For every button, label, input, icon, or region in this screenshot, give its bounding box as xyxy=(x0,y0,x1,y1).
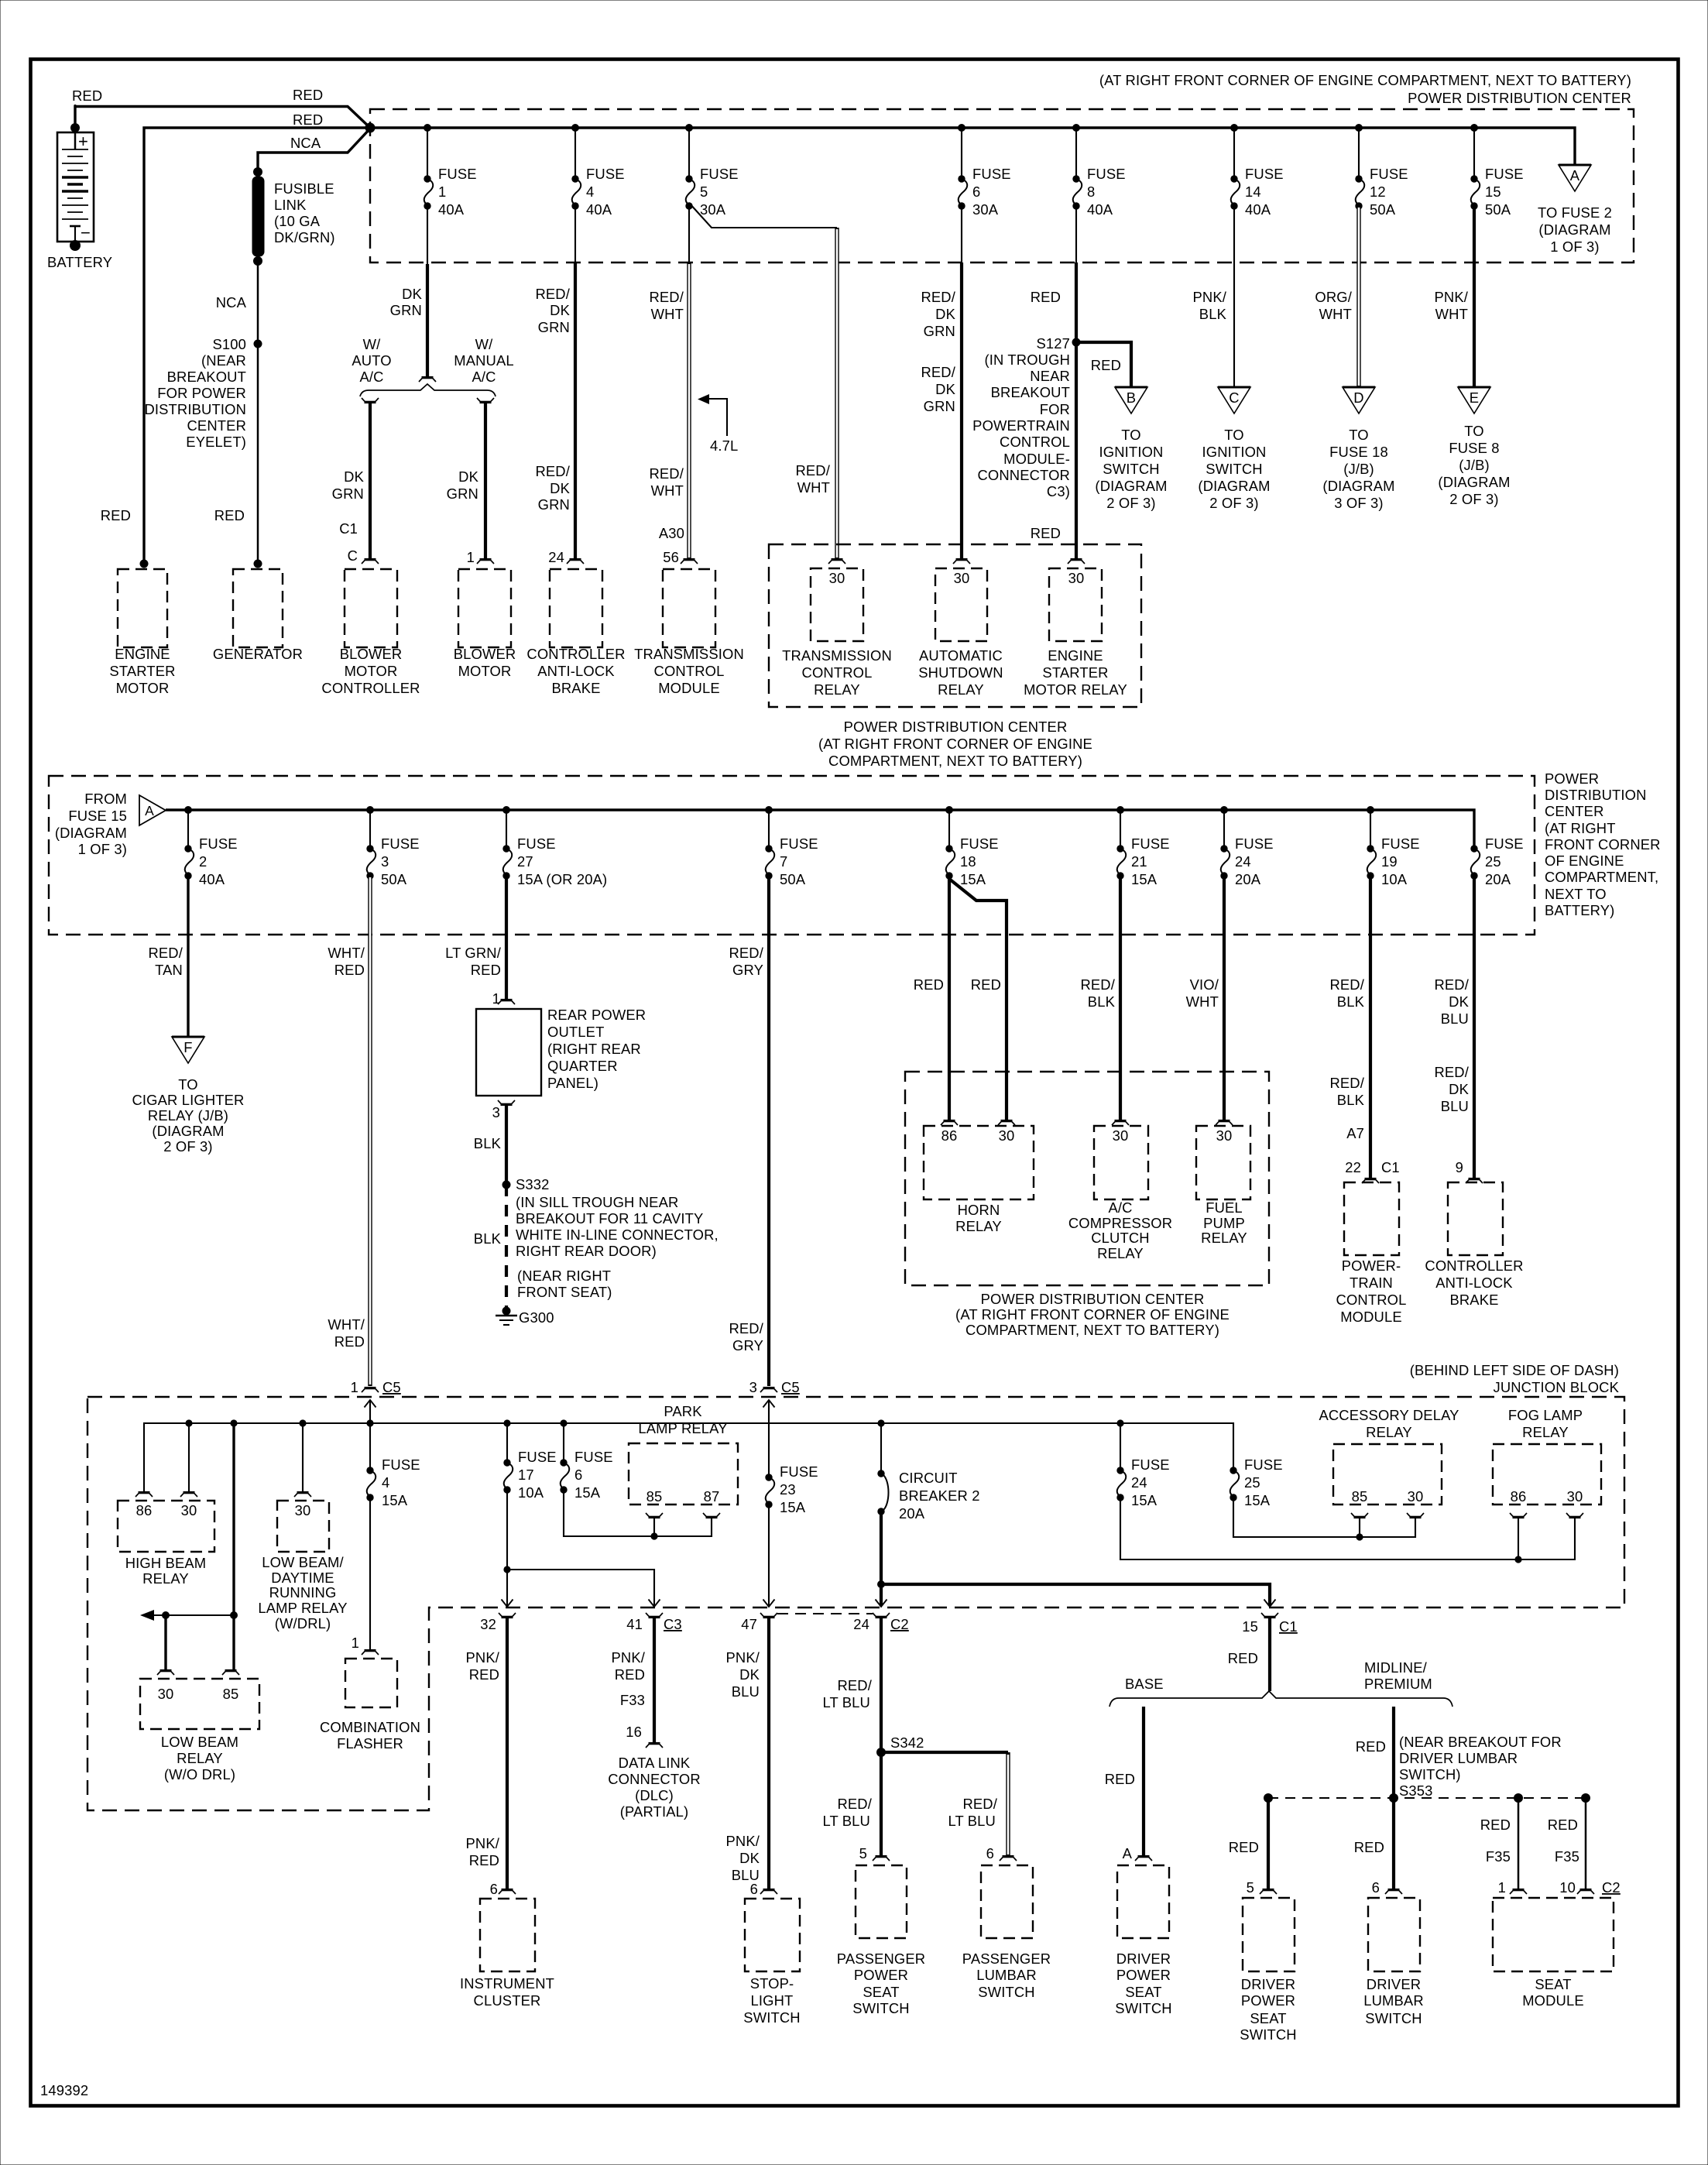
svg-text:LT BLU: LT BLU xyxy=(948,1813,996,1829)
svg-text:A/C: A/C xyxy=(472,369,496,385)
svg-text:30: 30 xyxy=(1113,1127,1129,1144)
svg-text:15: 15 xyxy=(1242,1618,1258,1635)
svg-text:LT GRN/: LT GRN/ xyxy=(445,945,502,961)
svg-text:ENGINE: ENGINE xyxy=(1048,647,1103,664)
svg-text:S127: S127 xyxy=(1036,335,1070,352)
svg-text:SWITCH): SWITCH) xyxy=(1399,1766,1461,1782)
svg-text:(DIAGRAM: (DIAGRAM xyxy=(1198,478,1270,494)
svg-text:BLU: BLU xyxy=(732,1683,760,1700)
svg-text:DK: DK xyxy=(1449,993,1469,1010)
svg-text:WHT: WHT xyxy=(651,482,684,499)
svg-text:CIRCUIT: CIRCUIT xyxy=(899,1470,958,1486)
svg-text:BREAKOUT: BREAKOUT xyxy=(991,384,1070,400)
svg-text:MODULE: MODULE xyxy=(658,680,720,696)
svg-text:DK: DK xyxy=(935,306,955,322)
svg-text:RED/: RED/ xyxy=(837,1796,872,1812)
svg-text:FUSE: FUSE xyxy=(1370,166,1408,182)
svg-text:3: 3 xyxy=(492,1104,500,1120)
svg-text:SWITCH: SWITCH xyxy=(1365,2010,1422,2026)
svg-text:OF ENGINE: OF ENGINE xyxy=(1545,853,1624,869)
svg-text:FUSE: FUSE xyxy=(382,1456,420,1473)
svg-text:SWITCH: SWITCH xyxy=(1240,2026,1296,2043)
svg-text:DK: DK xyxy=(550,480,570,496)
svg-text:DRIVER: DRIVER xyxy=(1241,1976,1295,1992)
svg-text:BLU: BLU xyxy=(1441,1098,1469,1114)
svg-text:30: 30 xyxy=(1567,1488,1583,1505)
svg-text:F35: F35 xyxy=(1555,1848,1579,1865)
svg-text:RED: RED xyxy=(214,507,245,523)
svg-text:30: 30 xyxy=(181,1502,197,1518)
svg-text:GRN: GRN xyxy=(332,485,364,502)
svg-text:CIGAR LIGHTER: CIGAR LIGHTER xyxy=(132,1092,244,1108)
svg-text:RED: RED xyxy=(1356,1738,1386,1755)
svg-text:C2: C2 xyxy=(890,1616,909,1632)
svg-text:F: F xyxy=(183,1039,192,1055)
svg-text:(AT RIGHT FRONT CORNER OF ENGI: (AT RIGHT FRONT CORNER OF ENGINE xyxy=(818,736,1092,752)
svg-text:FROM: FROM xyxy=(84,791,127,807)
svg-text:G300: G300 xyxy=(519,1309,554,1326)
svg-text:25: 25 xyxy=(1244,1474,1260,1491)
svg-text:6: 6 xyxy=(986,1845,994,1861)
svg-text:PANEL): PANEL) xyxy=(547,1075,598,1091)
svg-text:−: − xyxy=(81,223,91,242)
svg-text:FOG LAMP: FOG LAMP xyxy=(1508,1407,1583,1423)
svg-text:D: D xyxy=(1353,389,1363,406)
svg-text:POWER: POWER xyxy=(1545,770,1599,787)
svg-text:SEAT: SEAT xyxy=(1250,2010,1286,2026)
svg-text:TAN: TAN xyxy=(155,962,183,978)
svg-text:BASE: BASE xyxy=(1125,1676,1164,1692)
svg-text:23: 23 xyxy=(780,1481,796,1498)
svg-text:FUSE: FUSE xyxy=(1485,835,1524,852)
svg-text:GRN: GRN xyxy=(447,485,478,502)
svg-text:CONNECTOR: CONNECTOR xyxy=(977,467,1070,483)
svg-text:RED/: RED/ xyxy=(1080,976,1115,993)
svg-text:OUTLET: OUTLET xyxy=(547,1024,604,1040)
svg-text:RED/: RED/ xyxy=(1434,1064,1469,1080)
svg-text:FUSE: FUSE xyxy=(517,835,556,852)
svg-text:RED: RED xyxy=(293,87,323,103)
svg-text:COMPARTMENT, NEXT TO BATTERY): COMPARTMENT, NEXT TO BATTERY) xyxy=(828,753,1082,769)
svg-text:RELAY: RELAY xyxy=(1366,1424,1412,1440)
svg-text:20A: 20A xyxy=(1485,871,1511,887)
svg-text:RED/: RED/ xyxy=(535,286,570,302)
svg-text:GRY: GRY xyxy=(732,962,763,978)
svg-text:RELAY: RELAY xyxy=(955,1218,1002,1234)
svg-text:DATA LINK: DATA LINK xyxy=(619,1755,691,1771)
svg-text:W/: W/ xyxy=(475,336,494,352)
svg-text:FUSE: FUSE xyxy=(780,835,818,852)
svg-text:24: 24 xyxy=(548,549,564,565)
svg-text:FUSE: FUSE xyxy=(780,1463,818,1480)
svg-text:2 OF 3): 2 OF 3) xyxy=(163,1138,212,1155)
svg-text:CONTROLLER: CONTROLLER xyxy=(321,680,420,696)
svg-text:5: 5 xyxy=(859,1845,867,1861)
svg-text:(DLC): (DLC) xyxy=(635,1787,674,1803)
svg-text:A: A xyxy=(145,803,154,818)
svg-text:FLASHER: FLASHER xyxy=(337,1735,403,1752)
svg-text:ANTI-LOCK: ANTI-LOCK xyxy=(1435,1275,1513,1291)
svg-text:30A: 30A xyxy=(972,201,999,218)
svg-text:PNK/: PNK/ xyxy=(725,1649,760,1666)
svg-text:RED: RED xyxy=(1031,525,1061,541)
svg-text:30: 30 xyxy=(1216,1127,1233,1144)
svg-text:SWITCH: SWITCH xyxy=(1206,461,1262,477)
svg-text:(DIAGRAM: (DIAGRAM xyxy=(1438,474,1510,490)
svg-text:C1: C1 xyxy=(339,520,358,537)
svg-text:CENTER: CENTER xyxy=(1545,803,1604,819)
svg-text:POWER DISTRIBUTION CENTER: POWER DISTRIBUTION CENTER xyxy=(981,1291,1205,1307)
svg-text:DK: DK xyxy=(1449,1081,1469,1097)
svg-text:BLK: BLK xyxy=(1199,306,1227,322)
svg-text:POWER: POWER xyxy=(1241,1992,1295,2009)
svg-text:30A: 30A xyxy=(700,201,726,218)
svg-text:DRIVER: DRIVER xyxy=(1367,1976,1421,1992)
svg-text:40A: 40A xyxy=(438,201,465,218)
svg-text:RELAY: RELAY xyxy=(814,681,860,698)
svg-text:6: 6 xyxy=(490,1881,498,1897)
svg-text:CONTROLLER: CONTROLLER xyxy=(526,646,625,662)
svg-text:RED: RED xyxy=(1229,1839,1259,1855)
svg-text:FUSE: FUSE xyxy=(1087,166,1126,182)
svg-text:C5: C5 xyxy=(781,1379,800,1395)
svg-text:FUSE: FUSE xyxy=(960,835,999,852)
svg-text:MOTOR: MOTOR xyxy=(345,663,398,679)
svg-text:2 OF 3): 2 OF 3) xyxy=(1106,495,1155,511)
svg-text:(NEAR RIGHT: (NEAR RIGHT xyxy=(517,1268,611,1284)
svg-text:RED/: RED/ xyxy=(962,1796,997,1812)
svg-text:BRAKE: BRAKE xyxy=(1449,1292,1498,1308)
svg-text:(AT RIGHT FRONT CORNER OF ENGI: (AT RIGHT FRONT CORNER OF ENGINE COMPART… xyxy=(1099,72,1631,88)
svg-text:RED/: RED/ xyxy=(921,289,955,305)
svg-text:FUSE: FUSE xyxy=(1131,1456,1170,1473)
svg-text:SHUTDOWN: SHUTDOWN xyxy=(918,664,1003,681)
svg-text:32: 32 xyxy=(480,1616,496,1632)
svg-text:CLUSTER: CLUSTER xyxy=(474,1992,541,2009)
svg-text:RED: RED xyxy=(72,87,102,104)
svg-text:GRN: GRN xyxy=(390,302,422,318)
svg-text:NEAR: NEAR xyxy=(1030,368,1070,384)
svg-text:WHT/: WHT/ xyxy=(328,945,365,961)
svg-text:WHITE IN-LINE CONNECTOR,: WHITE IN-LINE CONNECTOR, xyxy=(516,1227,719,1243)
svg-text:18: 18 xyxy=(960,853,976,870)
svg-text:FUSIBLE: FUSIBLE xyxy=(274,180,334,197)
svg-text:FRONT SEAT): FRONT SEAT) xyxy=(517,1284,612,1300)
svg-text:LIGHT: LIGHT xyxy=(751,1992,794,2009)
svg-text:FUSE: FUSE xyxy=(1485,166,1524,182)
svg-text:(W/O DRL): (W/O DRL) xyxy=(164,1766,235,1782)
svg-text:RELAY: RELAY xyxy=(938,681,984,698)
svg-text:BLK: BLK xyxy=(1337,993,1365,1010)
svg-text:MOTOR: MOTOR xyxy=(116,680,170,696)
svg-text:8: 8 xyxy=(1087,184,1095,200)
svg-text:56: 56 xyxy=(663,549,679,565)
svg-text:BRAKE: BRAKE xyxy=(551,680,600,696)
svg-text:1: 1 xyxy=(352,1635,359,1651)
svg-text:+: + xyxy=(78,132,88,151)
svg-text:DK: DK xyxy=(935,381,955,397)
svg-text:GRN: GRN xyxy=(538,496,570,513)
svg-text:A/C: A/C xyxy=(359,369,383,385)
svg-text:2 OF 3): 2 OF 3) xyxy=(1449,491,1498,507)
svg-text:(W/DRL): (W/DRL) xyxy=(275,1615,331,1631)
svg-text:SWITCH: SWITCH xyxy=(1103,461,1159,477)
svg-text:COMBINATION: COMBINATION xyxy=(320,1719,420,1735)
svg-text:RELAY: RELAY xyxy=(1097,1245,1144,1261)
svg-text:RED: RED xyxy=(914,976,944,993)
svg-text:RED/: RED/ xyxy=(649,289,684,305)
svg-text:40A: 40A xyxy=(199,871,225,887)
svg-text:1 OF 3): 1 OF 3) xyxy=(78,841,127,857)
svg-text:RED: RED xyxy=(1091,357,1121,373)
svg-text:WHT: WHT xyxy=(1319,306,1352,322)
svg-text:LT BLU: LT BLU xyxy=(822,1694,870,1710)
svg-text:LUMBAR: LUMBAR xyxy=(1363,1992,1424,2009)
svg-text:TO: TO xyxy=(1464,423,1484,439)
svg-text:RED: RED xyxy=(293,112,323,128)
svg-text:FUSE 15: FUSE 15 xyxy=(68,808,127,824)
svg-text:RED/: RED/ xyxy=(1434,976,1469,993)
svg-text:LOW BEAM: LOW BEAM xyxy=(161,1734,238,1750)
svg-text:RED/: RED/ xyxy=(837,1677,872,1693)
svg-text:21: 21 xyxy=(1131,853,1147,870)
svg-text:FUSE: FUSE xyxy=(1244,1456,1283,1473)
svg-text:LAMP RELAY: LAMP RELAY xyxy=(638,1420,727,1436)
svg-text:RED: RED xyxy=(1105,1771,1135,1787)
svg-text:149392: 149392 xyxy=(40,2082,88,2098)
svg-text:LT BLU: LT BLU xyxy=(822,1813,870,1829)
svg-text:GRN: GRN xyxy=(538,319,570,335)
svg-text:1: 1 xyxy=(467,549,475,565)
svg-text:30: 30 xyxy=(999,1127,1015,1144)
svg-text:RED/: RED/ xyxy=(649,465,684,482)
svg-text:PNK/: PNK/ xyxy=(611,1649,645,1666)
svg-text:41: 41 xyxy=(626,1616,643,1632)
svg-text:FUEL: FUEL xyxy=(1206,1199,1243,1216)
svg-text:C5: C5 xyxy=(382,1379,401,1395)
svg-text:85: 85 xyxy=(1352,1488,1368,1505)
svg-text:CONTROL: CONTROL xyxy=(1000,434,1070,450)
svg-text:20A: 20A xyxy=(1235,871,1261,887)
svg-text:(IN SILL TROUGH NEAR: (IN SILL TROUGH NEAR xyxy=(516,1194,678,1210)
svg-text:BREAKOUT: BREAKOUT xyxy=(167,369,246,385)
svg-text:POWERTRAIN: POWERTRAIN xyxy=(972,417,1070,434)
svg-text:BLK: BLK xyxy=(474,1230,502,1247)
svg-text:INSTRUMENT: INSTRUMENT xyxy=(460,1975,554,1992)
svg-text:(RIGHT REAR: (RIGHT REAR xyxy=(547,1041,641,1057)
svg-text:RED: RED xyxy=(469,1852,499,1868)
svg-text:COMPARTMENT,: COMPARTMENT, xyxy=(1545,869,1658,885)
svg-text:RELAY: RELAY xyxy=(1201,1230,1247,1246)
svg-text:40A: 40A xyxy=(1245,201,1271,218)
svg-text:BREAKOUT FOR 11 CAVITY: BREAKOUT FOR 11 CAVITY xyxy=(516,1210,703,1227)
svg-text:FUSE 8: FUSE 8 xyxy=(1449,440,1499,456)
svg-text:S342: S342 xyxy=(890,1734,924,1751)
svg-text:ORG/: ORG/ xyxy=(1315,289,1352,305)
svg-text:HORN: HORN xyxy=(958,1202,1000,1218)
svg-text:15: 15 xyxy=(1485,184,1501,200)
svg-text:GRN: GRN xyxy=(924,323,955,339)
svg-text:C: C xyxy=(348,547,358,564)
svg-text:NEXT TO: NEXT TO xyxy=(1545,886,1607,902)
svg-text:C1: C1 xyxy=(1381,1159,1400,1175)
svg-text:JUNCTION BLOCK: JUNCTION BLOCK xyxy=(1493,1379,1619,1395)
svg-text:BLK: BLK xyxy=(1088,993,1116,1010)
svg-text:CONTROLLER: CONTROLLER xyxy=(1425,1257,1523,1274)
svg-text:30: 30 xyxy=(158,1686,174,1702)
svg-text:S353: S353 xyxy=(1399,1782,1433,1799)
svg-text:FOR POWER: FOR POWER xyxy=(157,385,246,401)
svg-text:86: 86 xyxy=(136,1502,153,1518)
svg-text:RED/: RED/ xyxy=(535,463,570,479)
svg-text:RELAY (J/B): RELAY (J/B) xyxy=(148,1107,228,1124)
svg-text:SWITCH: SWITCH xyxy=(852,2000,909,2016)
svg-text:SEAT: SEAT xyxy=(863,1984,899,2000)
svg-text:POWER: POWER xyxy=(854,1967,908,1983)
svg-text:2 OF 3): 2 OF 3) xyxy=(1209,495,1258,511)
svg-text:BLOWER: BLOWER xyxy=(340,646,403,662)
svg-text:LINK: LINK xyxy=(274,197,307,213)
svg-text:FUSE: FUSE xyxy=(1381,835,1420,852)
svg-text:RELAY: RELAY xyxy=(1522,1424,1569,1440)
svg-text:B: B xyxy=(1127,389,1136,406)
svg-text:STARTER: STARTER xyxy=(109,663,175,679)
svg-text:50A: 50A xyxy=(1370,201,1396,218)
svg-text:1: 1 xyxy=(438,184,446,200)
svg-text:FUSE: FUSE xyxy=(381,835,420,852)
svg-text:MOTOR: MOTOR xyxy=(458,663,512,679)
svg-text:IGNITION: IGNITION xyxy=(1099,444,1164,460)
svg-text:RED: RED xyxy=(1480,1817,1511,1833)
svg-text:15A: 15A xyxy=(1244,1492,1271,1508)
svg-text:1: 1 xyxy=(492,990,500,1007)
svg-text:24: 24 xyxy=(853,1616,869,1632)
svg-text:PASSENGER: PASSENGER xyxy=(962,1951,1051,1967)
svg-text:PNK/: PNK/ xyxy=(465,1835,499,1851)
svg-text:5: 5 xyxy=(1247,1879,1254,1896)
svg-text:FUSE: FUSE xyxy=(574,1449,613,1465)
svg-text:6: 6 xyxy=(1372,1879,1380,1896)
svg-text:HIGH BEAM: HIGH BEAM xyxy=(125,1555,207,1571)
svg-text:40A: 40A xyxy=(1087,201,1113,218)
svg-text:S332: S332 xyxy=(516,1176,550,1192)
svg-text:30: 30 xyxy=(829,570,845,586)
svg-text:(BEHIND LEFT SIDE OF DASH): (BEHIND LEFT SIDE OF DASH) xyxy=(1410,1362,1619,1378)
svg-text:3: 3 xyxy=(749,1379,757,1395)
svg-text:30: 30 xyxy=(954,570,970,586)
svg-text:C2: C2 xyxy=(1602,1879,1621,1896)
svg-text:(AT RIGHT: (AT RIGHT xyxy=(1545,820,1616,836)
svg-text:BLU: BLU xyxy=(1441,1010,1469,1027)
svg-text:FUSE: FUSE xyxy=(1235,835,1274,852)
svg-text:(J/B): (J/B) xyxy=(1459,457,1490,473)
svg-text:F35: F35 xyxy=(1486,1848,1511,1865)
svg-text:85: 85 xyxy=(647,1488,663,1505)
svg-text:RED/: RED/ xyxy=(795,462,830,479)
svg-text:(NEAR BREAKOUT FOR: (NEAR BREAKOUT FOR xyxy=(1399,1734,1562,1750)
svg-text:CONTROL: CONTROL xyxy=(802,664,873,681)
svg-text:ENGINE: ENGINE xyxy=(115,646,170,662)
svg-text:QUARTER: QUARTER xyxy=(547,1058,618,1074)
svg-text:PASSENGER: PASSENGER xyxy=(837,1951,925,1967)
svg-text:RED: RED xyxy=(471,962,501,978)
svg-text:WHT/: WHT/ xyxy=(328,1316,365,1333)
svg-text:RIGHT REAR DOOR): RIGHT REAR DOOR) xyxy=(516,1243,657,1259)
svg-text:SEAT: SEAT xyxy=(1125,1984,1161,2000)
svg-text:LAMP RELAY: LAMP RELAY xyxy=(258,1600,347,1616)
svg-text:2: 2 xyxy=(199,853,207,870)
svg-text:A: A xyxy=(1570,167,1580,184)
svg-text:A30: A30 xyxy=(659,525,684,541)
svg-text:1: 1 xyxy=(1498,1879,1506,1896)
svg-text:RED: RED xyxy=(971,976,1001,993)
svg-text:WHT: WHT xyxy=(1435,306,1468,322)
svg-text:LUMBAR: LUMBAR xyxy=(976,1967,1037,1983)
svg-text:SWITCH: SWITCH xyxy=(743,2009,800,2026)
svg-text:RED: RED xyxy=(334,962,365,978)
svg-text:LOW BEAM/: LOW BEAM/ xyxy=(262,1554,344,1570)
svg-text:TO: TO xyxy=(1121,427,1141,443)
svg-text:POWER-: POWER- xyxy=(1342,1257,1401,1274)
svg-text:W/: W/ xyxy=(363,336,382,352)
svg-text:DK/GRN): DK/GRN) xyxy=(274,229,335,245)
svg-text:15A: 15A xyxy=(382,1492,408,1508)
svg-text:RED: RED xyxy=(101,507,131,523)
svg-text:C3): C3) xyxy=(1047,483,1070,499)
svg-text:(DIAGRAM: (DIAGRAM xyxy=(152,1123,224,1139)
svg-text:DRIVER: DRIVER xyxy=(1116,1951,1171,1967)
svg-text:14: 14 xyxy=(1245,184,1261,200)
svg-text:(DIAGRAM: (DIAGRAM xyxy=(1538,221,1610,238)
svg-text:50A: 50A xyxy=(381,871,407,887)
svg-text:C3: C3 xyxy=(664,1616,682,1632)
svg-text:MODULE: MODULE xyxy=(1522,1992,1584,2009)
svg-text:MODULE-: MODULE- xyxy=(1003,451,1070,467)
svg-text:MIDLINE/: MIDLINE/ xyxy=(1364,1659,1428,1676)
svg-text:SEAT: SEAT xyxy=(1535,1976,1571,1992)
svg-text:86: 86 xyxy=(941,1127,958,1144)
svg-text:WHT: WHT xyxy=(1186,993,1219,1010)
svg-text:F33: F33 xyxy=(620,1692,645,1708)
svg-text:FUSE: FUSE xyxy=(586,166,625,182)
svg-text:RUNNING: RUNNING xyxy=(269,1584,337,1601)
svg-text:4: 4 xyxy=(586,184,594,200)
svg-text:RED: RED xyxy=(469,1666,499,1683)
svg-text:NCA: NCA xyxy=(290,135,321,151)
svg-text:TO: TO xyxy=(1224,427,1244,443)
svg-text:40A: 40A xyxy=(586,201,612,218)
svg-text:PNK/: PNK/ xyxy=(725,1833,760,1849)
svg-text:PNK/: PNK/ xyxy=(1192,289,1226,305)
svg-text:NCA: NCA xyxy=(216,294,247,311)
svg-text:CONTROL: CONTROL xyxy=(1336,1292,1407,1308)
svg-text:DAYTIME: DAYTIME xyxy=(271,1570,334,1586)
svg-text:MODULE: MODULE xyxy=(1340,1309,1402,1325)
svg-text:15A: 15A xyxy=(574,1484,601,1501)
svg-text:FRONT CORNER: FRONT CORNER xyxy=(1545,836,1661,853)
svg-text:RELAY: RELAY xyxy=(177,1750,223,1766)
svg-text:RED: RED xyxy=(615,1666,645,1683)
svg-text:87: 87 xyxy=(704,1488,720,1505)
svg-text:TO: TO xyxy=(1349,427,1369,443)
svg-text:RED: RED xyxy=(1354,1839,1384,1855)
svg-text:86: 86 xyxy=(1511,1488,1527,1505)
svg-text:BATTERY: BATTERY xyxy=(47,254,112,270)
svg-text:STARTER: STARTER xyxy=(1042,664,1108,681)
svg-text:S100: S100 xyxy=(212,336,246,352)
svg-text:TRAIN: TRAIN xyxy=(1350,1275,1393,1291)
svg-text:6: 6 xyxy=(750,1881,758,1897)
